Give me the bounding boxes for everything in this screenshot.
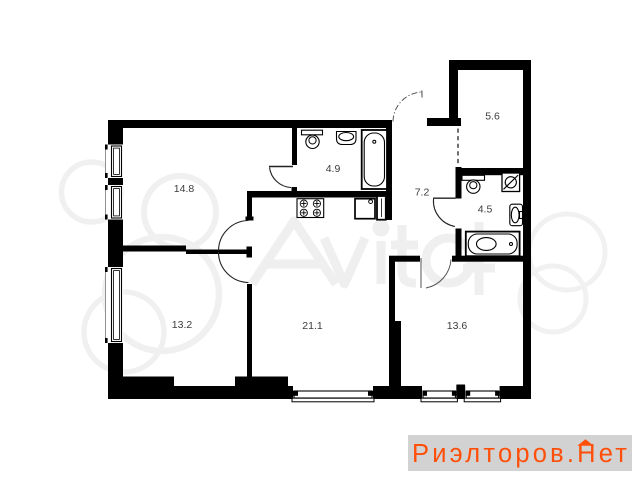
svg-text:14.8: 14.8 xyxy=(174,183,195,195)
svg-text:4.9: 4.9 xyxy=(326,163,341,175)
svg-text:21.1: 21.1 xyxy=(302,320,323,332)
svg-text:13.2: 13.2 xyxy=(172,319,193,331)
svg-text:Риэлторов.Нет: Риэлторов.Нет xyxy=(412,440,630,468)
svg-text:7.2: 7.2 xyxy=(415,187,430,199)
svg-text:4.5: 4.5 xyxy=(478,204,493,216)
svg-text:5.6: 5.6 xyxy=(485,111,500,123)
svg-text:13.6: 13.6 xyxy=(447,320,468,332)
